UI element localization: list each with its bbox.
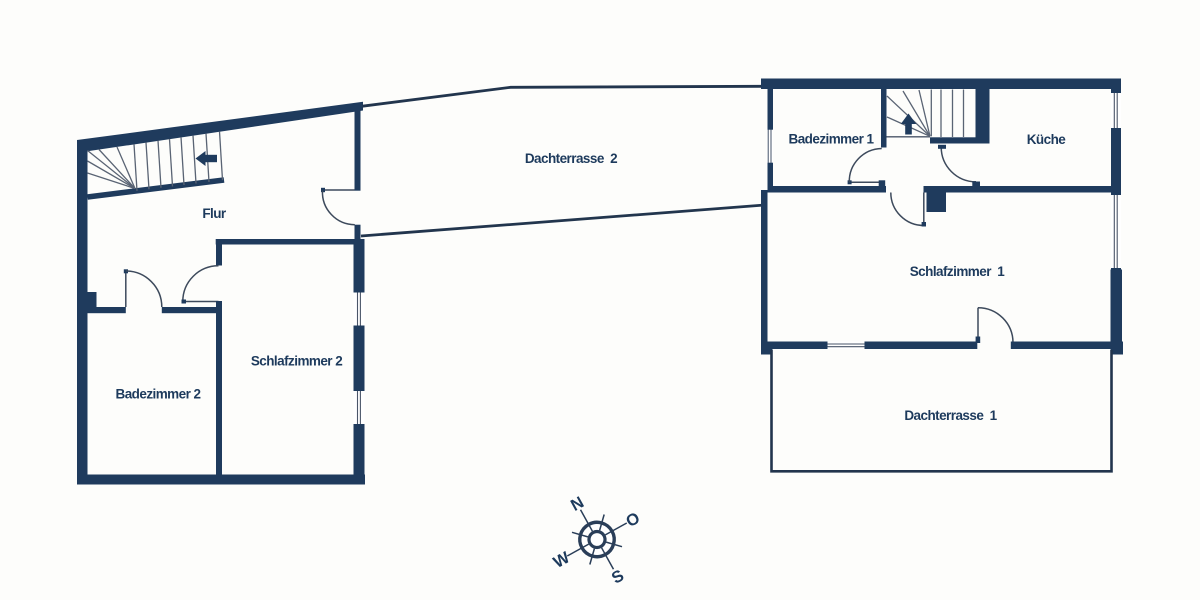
- svg-text:Küche: Küche: [1027, 132, 1067, 147]
- svg-text:Badezimmer 1: Badezimmer 1: [789, 131, 875, 146]
- svg-text:Schlafzimmer 1: Schlafzimmer 1: [910, 264, 1006, 279]
- svg-text:Schlafzimmer 2: Schlafzimmer 2: [251, 353, 342, 368]
- svg-text:Flur: Flur: [202, 206, 227, 221]
- svg-text:Dachterrasse 2: Dachterrasse 2: [525, 151, 617, 166]
- svg-text:Badezimmer 2: Badezimmer 2: [116, 386, 201, 401]
- svg-text:Dachterrasse 1: Dachterrasse 1: [904, 408, 997, 423]
